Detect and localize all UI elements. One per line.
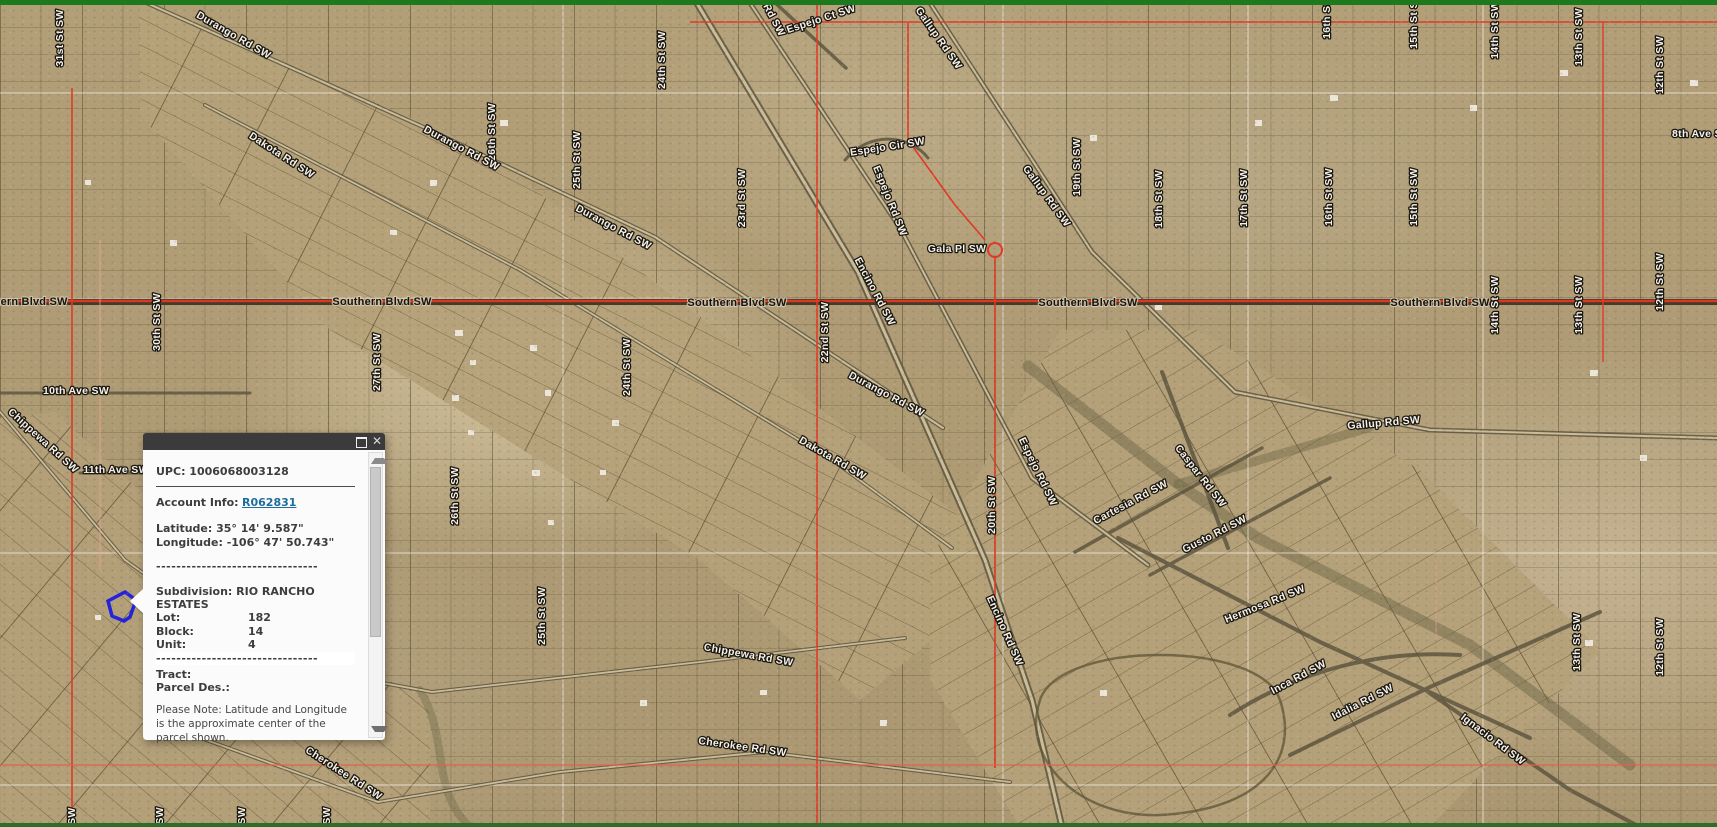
road-label: 23rd St SW (736, 169, 748, 227)
road-label: 31st St SW (54, 9, 66, 66)
road-label: Southern Blvd SW (332, 296, 432, 308)
parcel-des-label: Parcel Des.: (156, 681, 355, 694)
dashed-separator: -------------------------------- (156, 560, 355, 573)
road-label: 16th St SW (1323, 168, 1335, 226)
block-row: Block: 14 (156, 625, 355, 638)
road-label: 13th St SW (1573, 8, 1585, 66)
road-label: 14th St SW (1489, 276, 1501, 334)
popup-body: UPC: 1006068003128 Account Info: R062831… (143, 450, 385, 740)
road-label: 24th St SW (621, 338, 633, 396)
road-label: 30th St SW (151, 293, 163, 351)
close-icon[interactable]: ✕ (372, 434, 382, 449)
subdivision-value: Subdivision: RIO RANCHO ESTATES (156, 585, 336, 611)
popup-note: Please Note: Latitude and Longitude is t… (156, 704, 348, 745)
road-label: 25th St SW (536, 587, 548, 645)
parcel-info-popup: ✕ UPC: 1006068003128 Account Info: R0628… (143, 433, 385, 740)
road-label: 26th St SW (486, 103, 498, 161)
dashed-separator-2: -------------------------------- (156, 652, 355, 665)
road-label: 16th St SW (1321, 0, 1333, 39)
road-label: 18th St SW (1153, 170, 1165, 228)
scrollbar-thumb[interactable] (370, 467, 381, 637)
road-label: 15th St SW (1408, 0, 1420, 49)
popup-scrollbar[interactable] (368, 452, 383, 738)
account-info-link[interactable]: R062831 (242, 496, 296, 509)
restore-icon[interactable] (356, 437, 367, 448)
road-label: 25th St SW (571, 131, 583, 189)
road-label: Gala Pl SW (928, 243, 986, 255)
road-label: 22nd St SW (819, 302, 831, 363)
popup-titlebar: ✕ (143, 433, 385, 450)
road-label: 12th St SW (1654, 618, 1666, 676)
longitude-value: Longitude: -106° 47' 50.743" (156, 536, 355, 549)
popup-pointer-tail (130, 588, 144, 614)
road-label: 13th St SW (1571, 613, 1583, 671)
road-label: 17th St SW (1238, 169, 1250, 227)
scroll-down-icon[interactable] (371, 726, 388, 732)
gis-parcel-viewer: { "popup": { "upc": "UPC: 1006068003128"… (0, 0, 1717, 827)
road-label: Southern Blvd SW (0, 296, 68, 308)
road-label: 15th St SW (1408, 168, 1420, 226)
unit-row: Unit: 4 (156, 638, 355, 651)
road-label: 26th St SW (449, 467, 461, 525)
tract-label: Tract: (156, 668, 355, 681)
road-label: 27th St SW (371, 333, 383, 391)
lot-row: Lot: 182 (156, 611, 355, 624)
road-label: 20th St SW (986, 476, 998, 534)
top-border-strip (0, 0, 1717, 5)
road-label: 8th Ave SW (1672, 128, 1717, 140)
scroll-up-icon[interactable] (371, 458, 388, 464)
road-label: 19th St SW (1071, 138, 1083, 196)
bottom-border-strip (0, 823, 1717, 827)
road-label: 12th St SW (1654, 36, 1666, 94)
road-label: Southern Blvd SW (1038, 297, 1138, 309)
block-label: Block: (156, 625, 248, 638)
road-label: 11th Ave SW (83, 464, 149, 476)
road-label: Southern Blvd SW (687, 297, 787, 309)
account-info-label: Account Info: (156, 496, 239, 509)
road-label: 13th St SW (1573, 276, 1585, 334)
block-value: 14 (248, 625, 263, 638)
road-label: 12th St SW (1654, 253, 1666, 311)
latitude-value: Latitude: 35° 14' 9.587" (156, 522, 355, 535)
unit-label: Unit: (156, 638, 248, 651)
account-info-row: Account Info: R062831 (156, 496, 355, 509)
road-label: 14th St SW (1489, 1, 1501, 59)
road-label: Southern Blvd SW (1390, 297, 1490, 309)
divider-line (156, 486, 355, 487)
road-label: 10th Ave SW (43, 385, 109, 397)
lot-value: 182 (248, 611, 271, 624)
upc-value: UPC: 1006068003128 (156, 465, 355, 478)
lot-label: Lot: (156, 611, 248, 624)
road-label: 24th St SW (656, 31, 668, 89)
unit-value: 4 (248, 638, 256, 651)
